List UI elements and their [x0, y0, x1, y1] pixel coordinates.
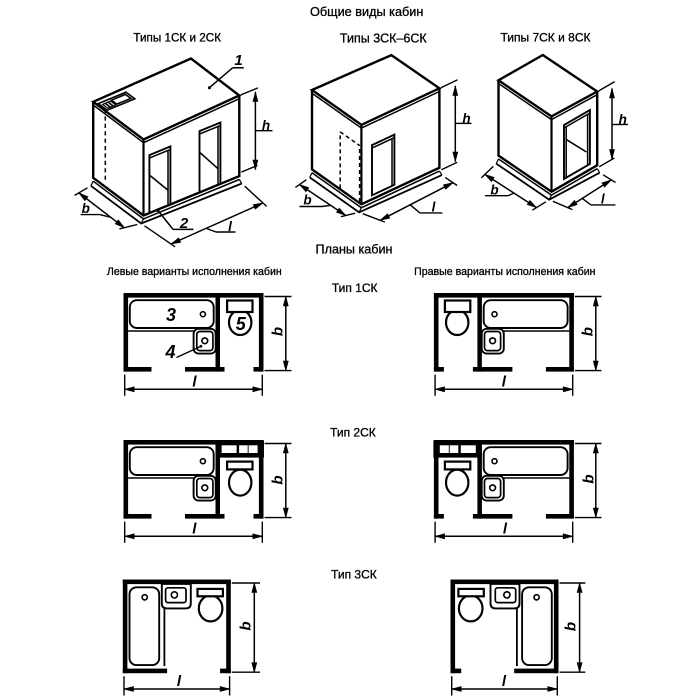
svg-text:2: 2: [179, 215, 189, 232]
svg-text:Тип 3СК: Тип 3СК: [331, 568, 377, 582]
svg-text:b: b: [579, 327, 596, 336]
svg-text:1: 1: [234, 52, 242, 69]
svg-text:h: h: [262, 118, 270, 133]
svg-text:b: b: [237, 621, 254, 630]
svg-text:b: b: [563, 622, 580, 631]
svg-text:l: l: [192, 520, 197, 537]
svg-text:Левые варианты исполнения каби: Левые варианты исполнения кабин: [107, 266, 282, 278]
svg-text:Тип 1СК: Тип 1СК: [332, 281, 378, 295]
svg-text:h: h: [619, 112, 627, 127]
svg-text:b: b: [82, 201, 90, 216]
svg-text:5: 5: [236, 314, 247, 334]
svg-text:4: 4: [164, 342, 175, 362]
svg-text:Правые варианты исполнения каб: Правые варианты исполнения кабин: [414, 266, 596, 278]
svg-text:b: b: [580, 474, 597, 483]
svg-text:l: l: [192, 373, 197, 390]
svg-text:l: l: [503, 520, 508, 537]
svg-text:Общие виды кабин: Общие виды кабин: [310, 5, 423, 19]
svg-text:3: 3: [166, 305, 176, 325]
svg-text:Типы 1СК и 2СК: Типы 1СК и 2СК: [133, 31, 221, 44]
svg-text:Тип 2СК: Тип 2СК: [330, 425, 376, 439]
svg-text:Типы 7СК и 8СК: Типы 7СК и 8СК: [501, 30, 591, 44]
svg-text:l: l: [228, 219, 232, 234]
svg-text:l: l: [601, 192, 605, 207]
svg-text:l: l: [502, 373, 507, 390]
svg-text:Типы 3СК–6СК: Типы 3СК–6СК: [340, 32, 427, 46]
svg-text:l: l: [502, 673, 507, 690]
svg-text:b: b: [490, 182, 498, 197]
svg-text:l: l: [432, 199, 436, 214]
svg-text:b: b: [270, 475, 287, 484]
svg-text:Планы кабин: Планы кабин: [316, 243, 393, 257]
svg-text:b: b: [303, 193, 311, 208]
svg-text:l: l: [177, 673, 182, 690]
svg-text:b: b: [269, 327, 286, 336]
svg-text:h: h: [462, 111, 470, 126]
